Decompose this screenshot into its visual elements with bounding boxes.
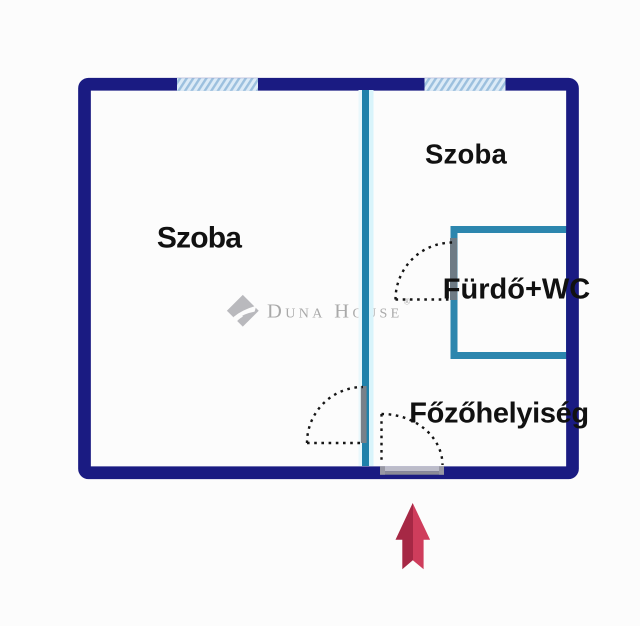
svg-text:®: ® <box>404 297 411 307</box>
svg-text:Fürdő+WC: Fürdő+WC <box>443 274 590 306</box>
svg-text:Szoba: Szoba <box>425 139 507 170</box>
svg-text:Szoba: Szoba <box>157 222 242 255</box>
svg-text:Duna House: Duna House <box>267 301 403 323</box>
svg-text:Főzőhelyiség: Főzőhelyiség <box>409 398 589 430</box>
